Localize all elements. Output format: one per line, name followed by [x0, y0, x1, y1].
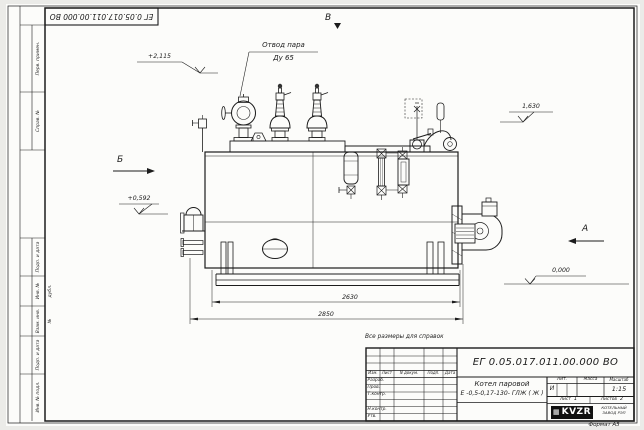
sheet-number: 1	[574, 397, 577, 403]
supports-skid	[216, 242, 459, 286]
margin-label-podp-data-2: Подп. и дата	[33, 336, 45, 374]
corner-stamp-doc-number: ЕГ 0.05.017.011.00.000 ВО	[45, 8, 158, 25]
elevation-right-top: 1,630	[509, 103, 553, 110]
callout-steam-line1: Отвод пара	[249, 41, 318, 49]
elevation-valves-top: +2,115	[137, 53, 182, 60]
callout-steam-line2: Ду 65	[249, 54, 318, 62]
view-letter-left: Б	[117, 155, 123, 165]
margin-label-sprav-no: Справ. №	[33, 92, 45, 150]
scale-header: Масштаб	[604, 378, 634, 383]
margin-label-vzam-inv: Взам. инв. №	[33, 306, 45, 336]
view-letter-top: В	[325, 13, 331, 23]
margin-label-inv-podl: Инв. № подл.	[33, 374, 45, 420]
kvzr-logo: ▦ KVZR	[551, 406, 593, 419]
sig-label-razrab: Разраб.	[368, 379, 385, 384]
company-line2: ЗАВОД РЭП	[595, 411, 633, 415]
product-name-line2: Е -0,5-0,17-130- ГЛЖ ( Ж )	[457, 390, 547, 397]
sheet-label: Лист	[560, 398, 571, 403]
mass-header: Масса	[577, 378, 604, 383]
rev-header-n-dokum: N докум.	[394, 371, 424, 376]
boiler-body	[205, 133, 458, 268]
sheets-label: Листов	[601, 398, 617, 403]
sheet-number-cell: Лист 1	[547, 397, 590, 403]
product-name-line1: Котел паровой	[458, 380, 546, 388]
dimension-shell-length: 2630	[330, 294, 370, 301]
lit-header: Лит.	[547, 378, 577, 383]
sheets-total-cell: Листов 2	[590, 397, 634, 403]
margin-label-podp-data-1: Подп. и дата	[33, 238, 45, 276]
safety-valves	[270, 84, 328, 141]
lit-value: И	[547, 386, 557, 393]
kvzr-logo-mark: ▦	[553, 408, 560, 416]
sig-label-prov: Пров.	[368, 386, 381, 391]
rev-header-izm: Изм.	[366, 371, 380, 376]
format-note: Формат А3	[578, 422, 630, 428]
margin-label-perv-primen: Перв. примен.	[33, 25, 45, 92]
lever-valve-group	[405, 99, 457, 152]
kvzr-logo-text: KVZR	[562, 407, 591, 417]
elevation-left-mid: +0,592	[119, 195, 159, 202]
titleblock-doc-number: ЕГ 0.05.017.011.00.000 ВО	[460, 351, 631, 375]
elevation-ground: 0,000	[538, 267, 584, 274]
reference-note: Все размеры для справок	[365, 334, 444, 341]
drawing-sheet: ЕГ 0.05.017.011.00.000 ВО Перв. примен. …	[0, 0, 644, 430]
level-gauges	[339, 147, 409, 200]
margin-label-inv-dubl: Инв. № дубл.	[33, 276, 45, 306]
burner	[452, 198, 502, 264]
sig-label-n-kontr: Н.контр.	[368, 408, 387, 413]
manhole	[263, 239, 288, 259]
rev-header-podp: Подп.	[424, 371, 443, 376]
steam-valve	[222, 94, 256, 141]
rev-header-list: Лист	[380, 371, 394, 376]
sheets-total: 2	[620, 397, 623, 403]
dimension-overall-length: 2850	[306, 311, 346, 318]
left-fittings	[181, 115, 207, 257]
rev-header-data: Дата	[443, 371, 457, 376]
view-letter-right: А	[582, 224, 588, 234]
scale-value: 1:15	[604, 386, 634, 393]
sig-label-t-kontr: Т.контр.	[368, 393, 387, 398]
sig-label-utv: Утв.	[368, 415, 377, 420]
